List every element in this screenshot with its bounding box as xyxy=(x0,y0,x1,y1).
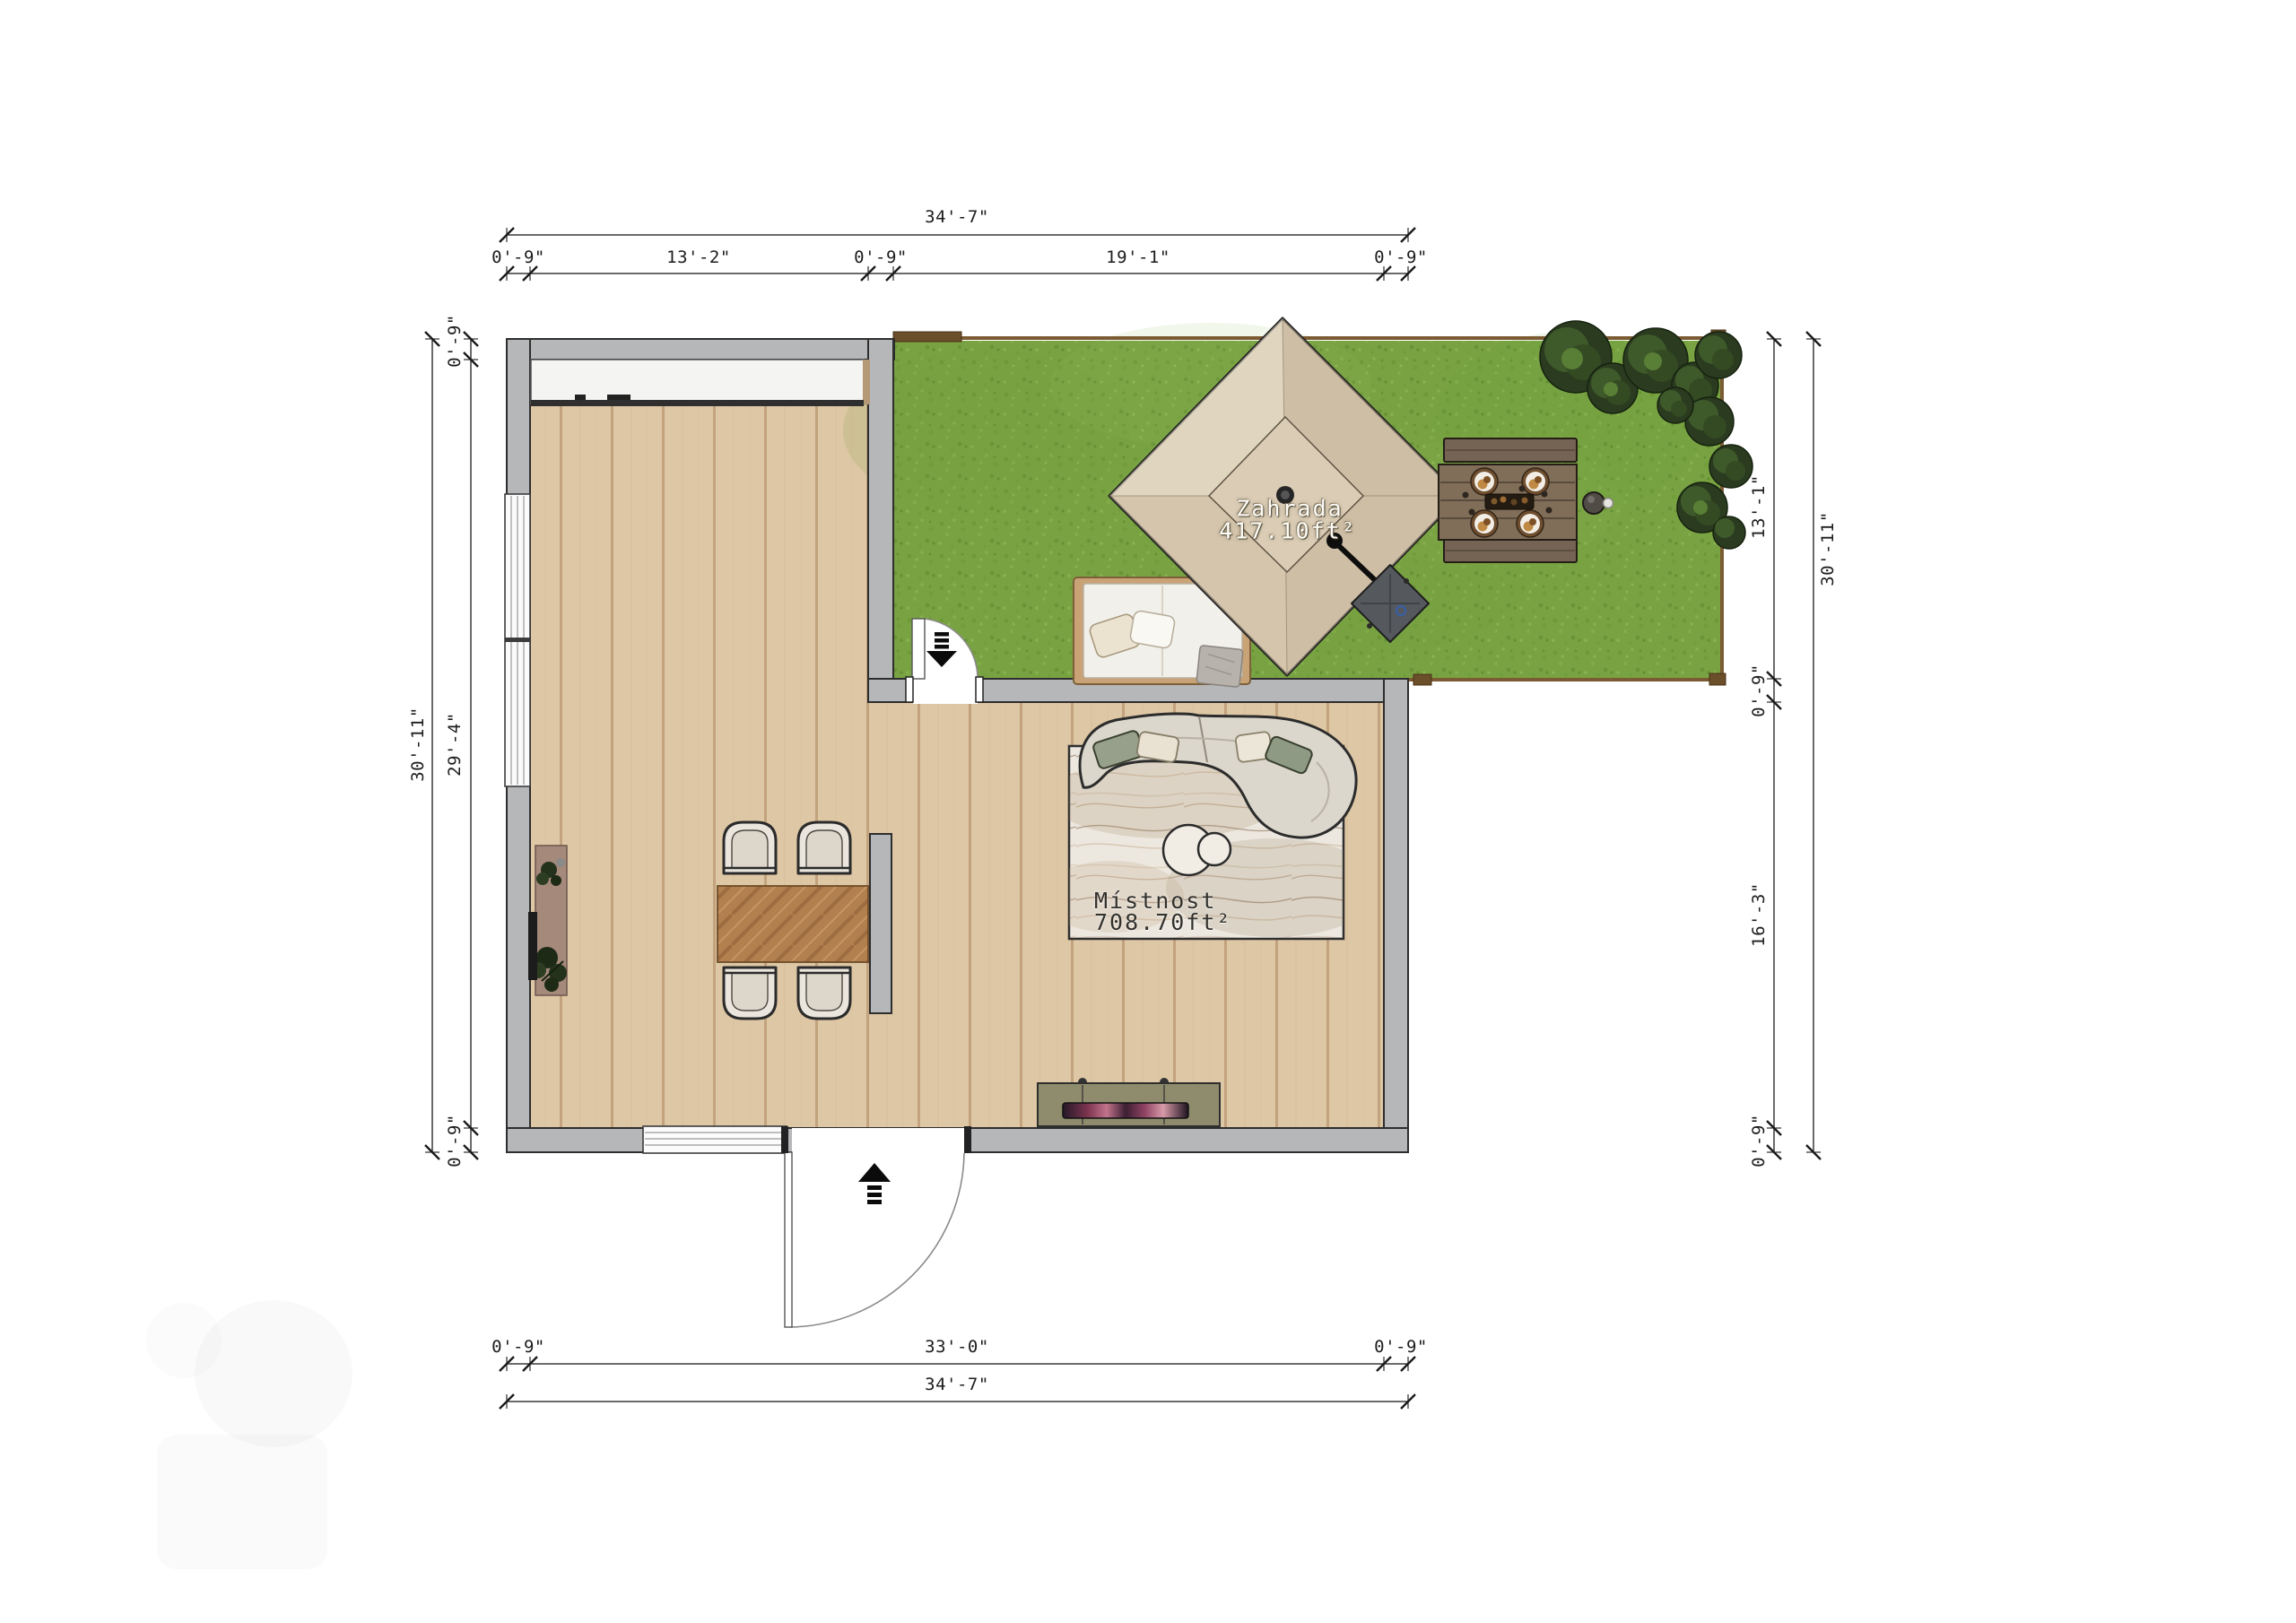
dim-bottom-total: 34'-7" xyxy=(925,1375,989,1394)
partition-wall[interactable] xyxy=(870,834,891,1013)
watermark xyxy=(146,1300,352,1569)
floor-plan-page: 34'-7" 0'-9" 13'-2" 0'-9" 19'-1" 0'-9" 0… xyxy=(0,0,2296,1623)
tree-icon xyxy=(1695,332,1742,378)
dim-top-seg: 0'-9" xyxy=(1374,247,1428,267)
dim-top-total: 34'-7" xyxy=(925,207,989,227)
dining-chair[interactable] xyxy=(798,822,850,873)
dim-top-seg: 0'-9" xyxy=(854,247,908,267)
dim-left-seg: 0'-9" xyxy=(445,314,465,368)
garden-area-label: 417.10ft² xyxy=(1219,518,1356,544)
dim-top-seg: 13'-2" xyxy=(666,247,731,267)
dim-right-seg: 16'-3" xyxy=(1749,882,1769,947)
dim-top-seg: 19'-1" xyxy=(1106,247,1170,267)
dining-chair[interactable] xyxy=(724,822,776,873)
dim-right-seg: 0'-9" xyxy=(1749,1114,1769,1167)
dim-left-seg: 29'-4" xyxy=(445,712,465,777)
flat-tv xyxy=(1063,1103,1188,1118)
dim-left-total: 30'-11" xyxy=(408,707,428,782)
dim-left-seg: 0'-9" xyxy=(445,1114,465,1167)
living-room-area-label: 708.70ft² xyxy=(1094,909,1231,935)
dim-right-seg: 0'-9" xyxy=(1749,664,1769,717)
floor-plan-drawing xyxy=(0,0,2296,1623)
dim-right-total: 30'-11" xyxy=(1818,511,1838,586)
media-console[interactable] xyxy=(1038,1078,1220,1126)
wall-right xyxy=(1384,679,1408,1152)
bottom-window-icon[interactable] xyxy=(643,1126,787,1153)
dining-chair[interactable] xyxy=(798,968,850,1019)
left-window-icon[interactable] xyxy=(505,494,530,786)
dim-right-seg: 13'-1" xyxy=(1749,474,1769,539)
dim-bottom-seg: 0'-9" xyxy=(491,1337,545,1357)
dim-bottom-seg: 0'-9" xyxy=(1374,1337,1428,1357)
dining-chair[interactable] xyxy=(724,968,776,1019)
dim-bottom-seg: 33'-0" xyxy=(925,1337,989,1357)
tree-icon xyxy=(1713,516,1745,549)
dim-top-seg: 0'-9" xyxy=(491,247,545,267)
closet[interactable] xyxy=(531,360,870,406)
entry-door[interactable] xyxy=(781,1126,971,1327)
tree-icon xyxy=(1657,387,1693,423)
dining-table[interactable] xyxy=(717,886,868,962)
tree-icon xyxy=(1709,445,1752,488)
wall-tv[interactable] xyxy=(528,912,537,980)
wall-garden-left xyxy=(868,339,893,680)
wall-top xyxy=(507,339,894,360)
